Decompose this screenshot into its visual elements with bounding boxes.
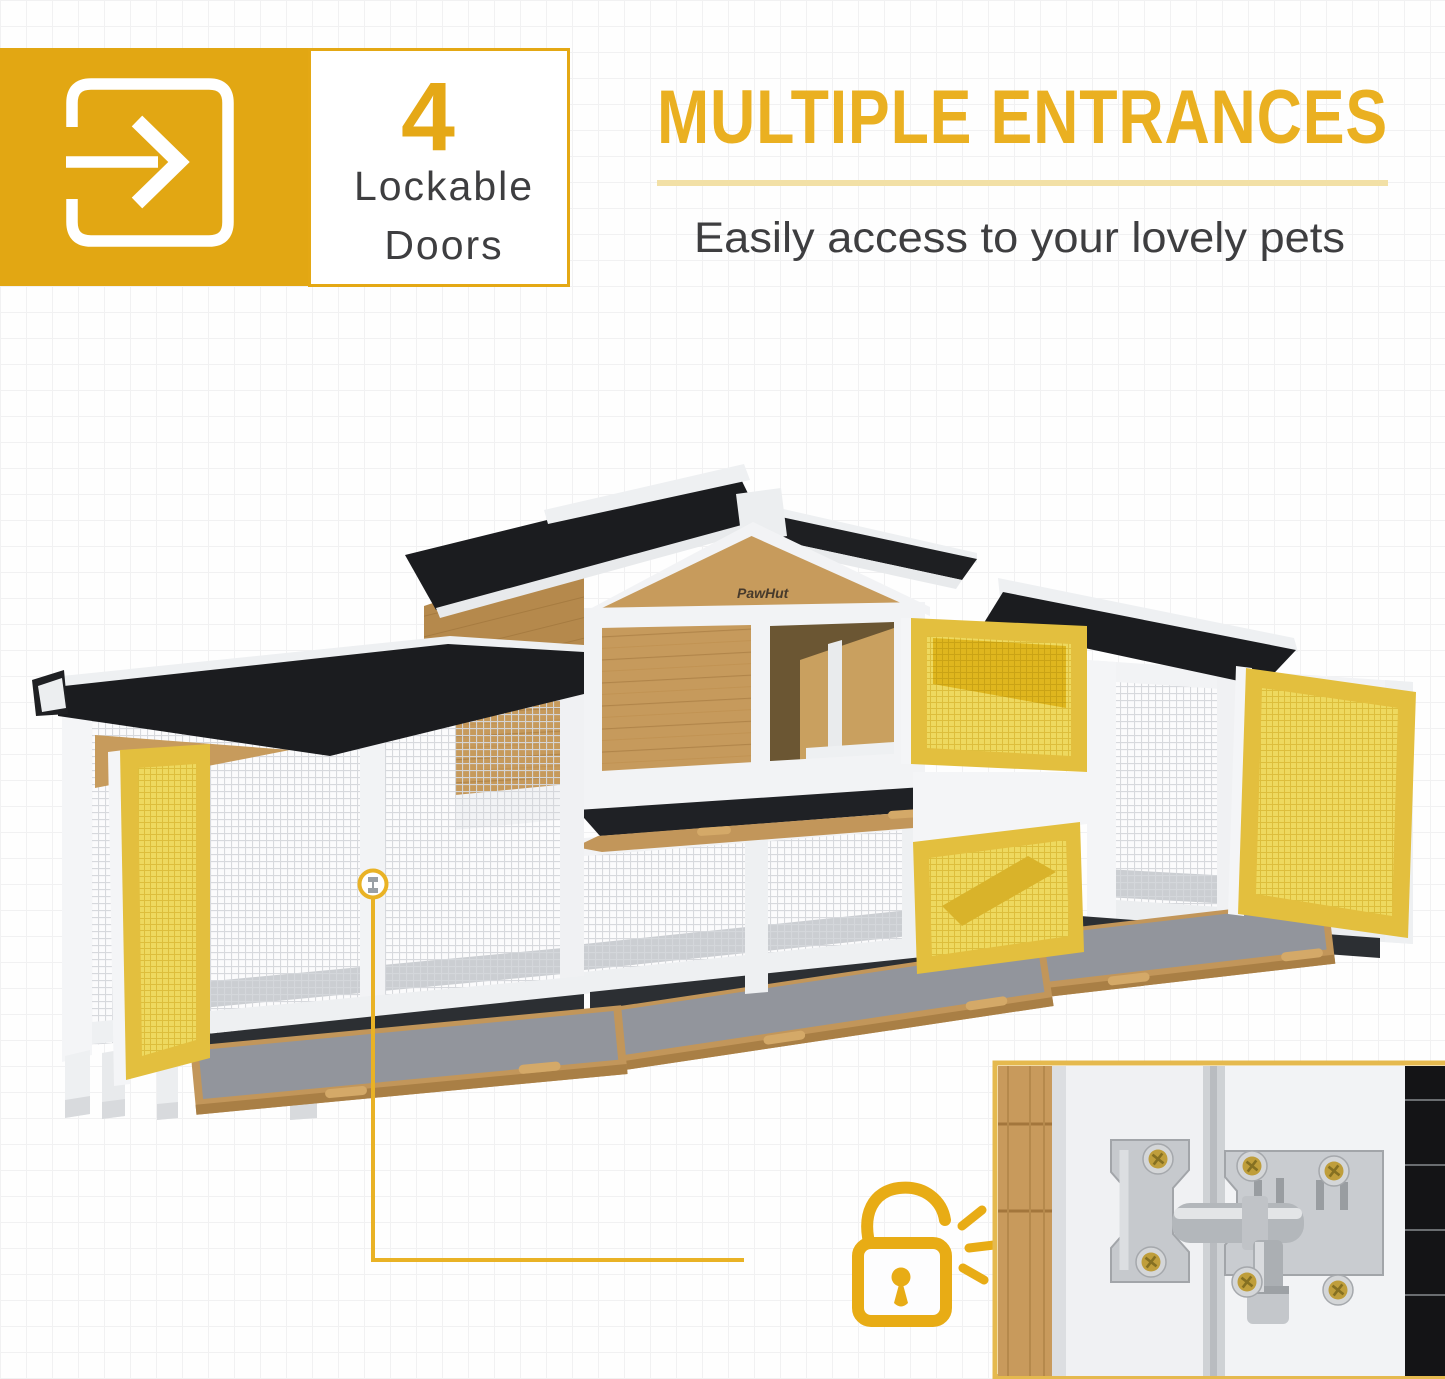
svg-text:MULTIPLE ENTRANCES: MULTIPLE ENTRANCES [657, 75, 1388, 160]
svg-text:Easily access to your lovely p: Easily access to your lovely pets [694, 214, 1345, 262]
svg-text:PawHut: PawHut [737, 585, 790, 601]
svg-text:Doors: Doors [384, 222, 503, 268]
svg-text:Lockable: Lockable [354, 163, 534, 209]
svg-text:4: 4 [401, 62, 455, 171]
